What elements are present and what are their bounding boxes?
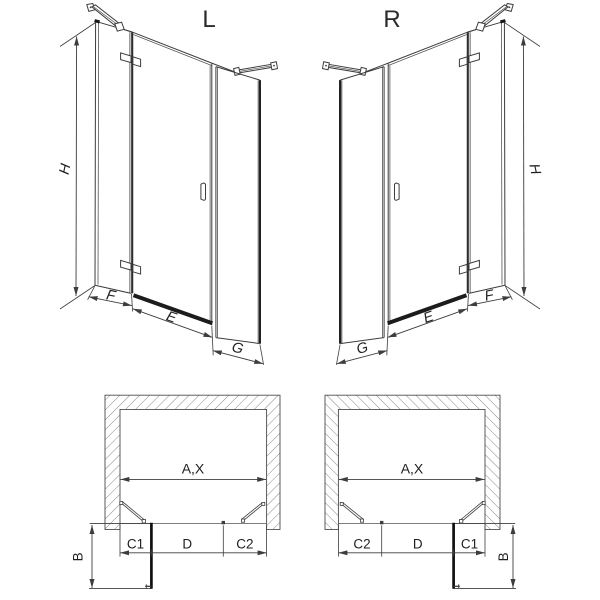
plan-depth-label-left: B	[71, 552, 86, 561]
plan-opening-label-right: A,X	[401, 461, 424, 477]
plan-segment-1-left: C1	[127, 536, 144, 551]
background	[0, 0, 600, 600]
plan-depth-label-right: B	[496, 552, 511, 561]
shower-door-diagram: L R H F E G H F E G A,X C1 D C2 B A,X C2…	[0, 0, 600, 600]
plan-opening-label-left: A,X	[182, 461, 205, 477]
plan-segment-3-left: C2	[236, 536, 253, 551]
plan-segment-1-right: C2	[353, 536, 370, 551]
variant-title-left: L	[202, 6, 215, 33]
panel-joint	[222, 521, 225, 524]
variant-title-right: R	[383, 6, 400, 33]
plan-segment-2-right: D	[413, 536, 423, 551]
door-handle-icon	[201, 183, 206, 200]
diagram-canvas: L R H F E G H F E G A,X C1 D C2 B A,X C2…	[0, 0, 600, 600]
plan-segment-3-right: C1	[461, 536, 478, 551]
plan-segment-2-left: D	[182, 536, 192, 551]
